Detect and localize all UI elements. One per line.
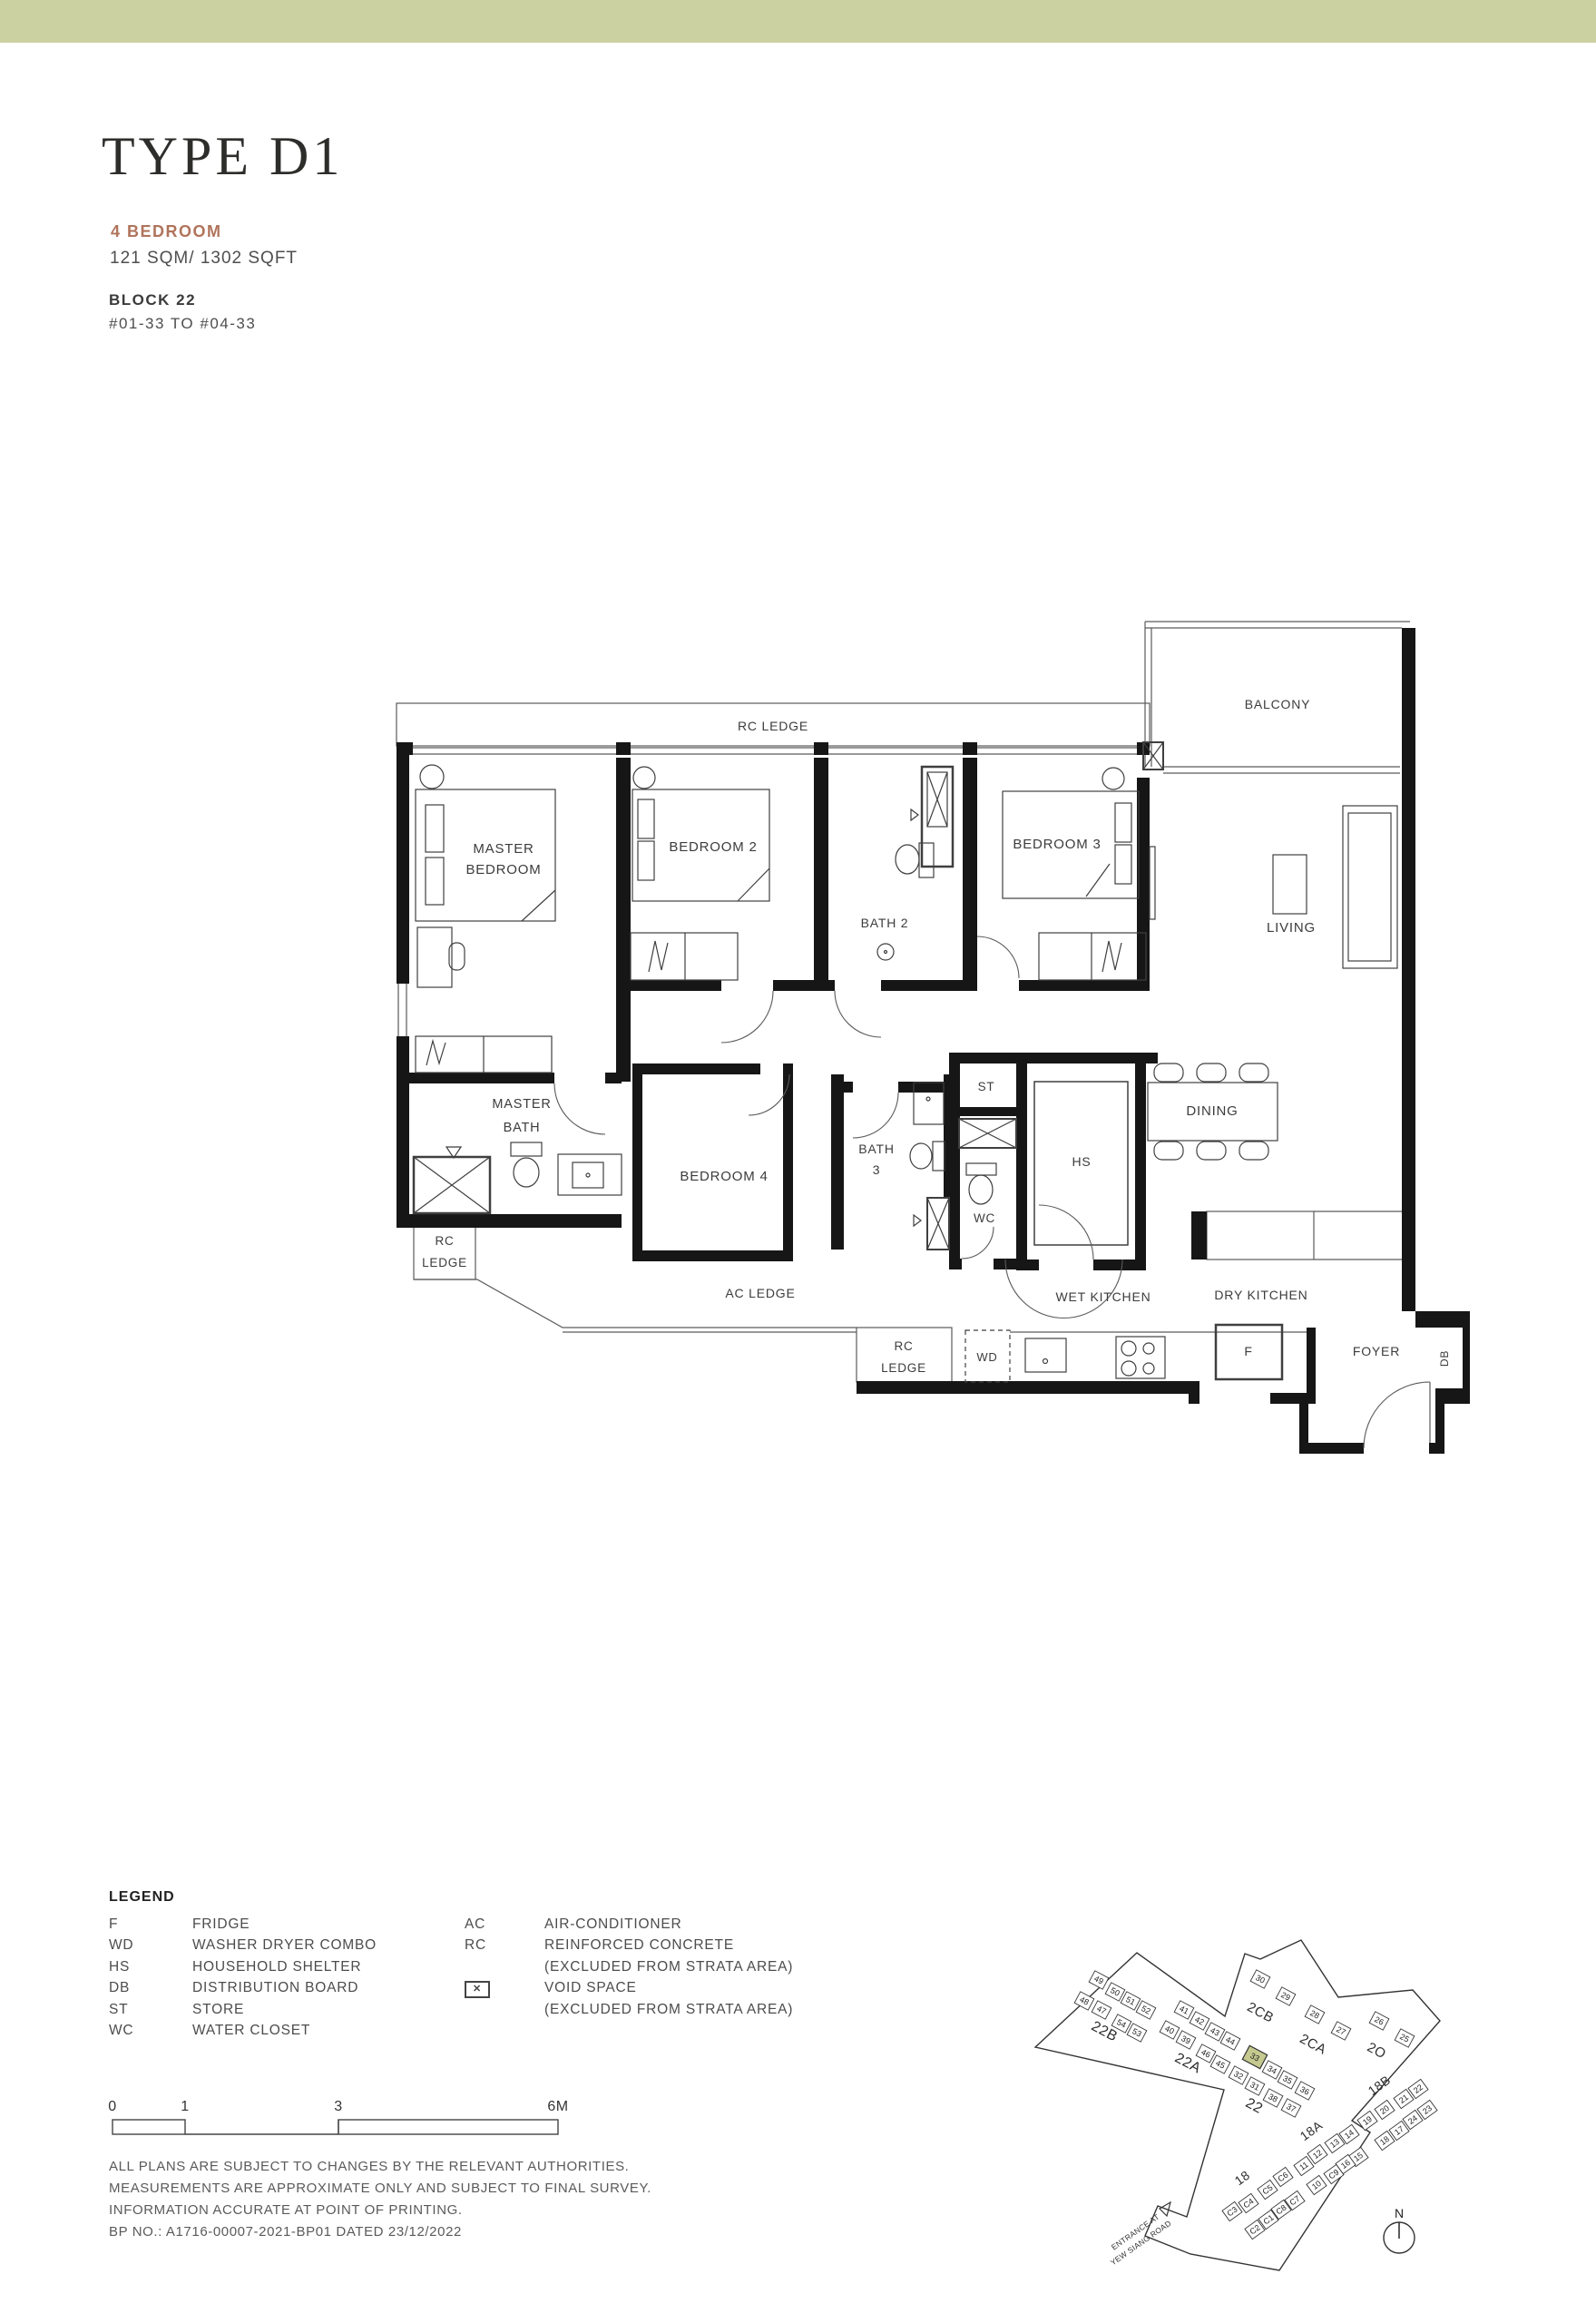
walls bbox=[397, 628, 1470, 1454]
north-label: N bbox=[1395, 2206, 1404, 2220]
site-boundary bbox=[1035, 1940, 1440, 2270]
legend-key: DB bbox=[109, 1977, 192, 1998]
desk bbox=[417, 927, 452, 987]
north-compass-icon: N bbox=[1384, 2206, 1415, 2253]
site-unit: 43 bbox=[1205, 2023, 1225, 2041]
legend-desc: AIR-CONDITIONER bbox=[544, 1914, 682, 1935]
site-unit: 53 bbox=[1127, 2024, 1147, 2042]
tv-console bbox=[1150, 847, 1155, 919]
scale-bar-shape bbox=[113, 2120, 558, 2134]
site-unit: 36 bbox=[1295, 2082, 1315, 2100]
site-unit: 52 bbox=[1136, 2001, 1156, 2019]
room-label-master-bath: MASTER bbox=[492, 1097, 551, 1112]
legend-desc: FRIDGE bbox=[192, 1914, 250, 1935]
site-unit: 27 bbox=[1331, 2022, 1351, 2040]
area-label: 121 SQM/ 1302 SQFT bbox=[110, 249, 298, 269]
site-unit: 19 bbox=[1357, 2111, 1377, 2130]
room-label-rc-ledge-bottom: RC bbox=[894, 1339, 913, 1353]
site-unit: 34 bbox=[1262, 2061, 1282, 2079]
scale-tick: 1 bbox=[181, 2099, 189, 2114]
site-unit: 12 bbox=[1307, 2144, 1327, 2163]
room-label-living: LIVING bbox=[1267, 920, 1316, 936]
site-unit: 38 bbox=[1263, 2089, 1283, 2107]
room-label-bath-3: BATH bbox=[858, 1142, 895, 1156]
legend-desc: REINFORCED CONCRETE (EXCLUDED FROM STRAT… bbox=[544, 1935, 793, 1977]
void-box-icon: ✕ bbox=[465, 1981, 490, 1998]
site-unit: 30 bbox=[1250, 1970, 1270, 1988]
site-unit: 25 bbox=[1395, 2029, 1415, 2047]
site-unit: 35 bbox=[1278, 2071, 1297, 2089]
legend-key: AC bbox=[465, 1914, 544, 1935]
site-unit: 47 bbox=[1092, 2001, 1111, 2019]
legend-left-column: FFRIDGEWDWASHER DRYER COMBOHSHOUSEHOLD S… bbox=[109, 1914, 465, 2041]
room-label-fridge: F bbox=[1244, 1344, 1252, 1358]
legend-row: STSTORE bbox=[109, 1999, 465, 2020]
room-label-balcony: BALCONY bbox=[1245, 697, 1311, 711]
site-unit: 10 bbox=[1307, 2175, 1327, 2194]
legend-key: F bbox=[109, 1914, 192, 1935]
legend-title: LEGEND bbox=[109, 1889, 853, 1906]
room-label-rc-ledge-left: RC bbox=[435, 1234, 454, 1248]
site-unit: 37 bbox=[1281, 2099, 1301, 2117]
site-block-label: 2CB bbox=[1245, 1999, 1277, 2025]
room-label-bedroom-2: BEDROOM 2 bbox=[669, 839, 757, 855]
page-title: TYPE D1 bbox=[102, 125, 343, 188]
site-block-label: 22 bbox=[1243, 2095, 1266, 2117]
room-label-bedroom-3: BEDROOM 3 bbox=[1013, 837, 1101, 852]
room-label-foyer: FOYER bbox=[1353, 1344, 1400, 1358]
room-label-bedroom-4: BEDROOM 4 bbox=[680, 1169, 768, 1184]
entrance-label: ENTRANCE ATYEW SIANG ROAD bbox=[1109, 2212, 1173, 2268]
site-unit: 44 bbox=[1220, 2032, 1240, 2050]
furniture bbox=[414, 742, 1397, 1382]
site-unit: 28 bbox=[1305, 2005, 1325, 2024]
site-plan: 4950515248475453414243444039464533343536… bbox=[989, 1860, 1596, 2323]
legend-desc: STORE bbox=[192, 1999, 244, 2020]
legend-desc: WASHER DRYER COMBO bbox=[192, 1935, 377, 1955]
site-unit: C6 bbox=[1273, 2167, 1293, 2186]
legend-desc: WATER CLOSET bbox=[192, 2020, 310, 2041]
site-unit: 32 bbox=[1229, 2066, 1248, 2084]
room-label-master-bedroom: MASTER bbox=[473, 841, 534, 857]
room-label-hs: HS bbox=[1072, 1154, 1091, 1169]
room-label-master-bedroom: BEDROOM bbox=[465, 862, 541, 877]
site-block-label: 2CA bbox=[1297, 2031, 1329, 2057]
unit-range-label: #01-33 TO #04-33 bbox=[109, 315, 256, 333]
scale-tick: 0 bbox=[108, 2099, 116, 2114]
legend: LEGEND FFRIDGEWDWASHER DRYER COMBOHSHOUS… bbox=[109, 1889, 853, 2041]
site-unit: 49 bbox=[1089, 1971, 1109, 1989]
legend-row: ACAIR-CONDITIONER bbox=[465, 1914, 793, 1935]
room-label-dining: DINING bbox=[1186, 1103, 1238, 1119]
site-unit: 26 bbox=[1369, 2012, 1389, 2030]
legend-desc: HOUSEHOLD SHELTER bbox=[192, 1956, 361, 1977]
legend-row: HSHOUSEHOLD SHELTER bbox=[109, 1956, 465, 1977]
site-unit: 29 bbox=[1276, 1987, 1296, 2005]
site-unit: 42 bbox=[1190, 2012, 1209, 2030]
site-block-label: 18B bbox=[1366, 2073, 1394, 2098]
scale-tick: 3 bbox=[334, 2099, 342, 2114]
wardrobe-2 bbox=[631, 933, 738, 980]
site-unit: C3 bbox=[1222, 2201, 1242, 2220]
legend-row: ✕VOID SPACE (EXCLUDED FROM STRATA AREA) bbox=[465, 1977, 793, 2020]
room-label-wc: WC bbox=[974, 1211, 995, 1225]
legend-row: RCREINFORCED CONCRETE (EXCLUDED FROM STR… bbox=[465, 1935, 793, 1977]
room-label-master-bath: BATH bbox=[504, 1121, 541, 1135]
floor-plan: RC LEDGEBALCONYMASTERBEDROOMBEDROOM 2BAT… bbox=[377, 594, 1493, 1475]
site-unit: 41 bbox=[1174, 2001, 1194, 2019]
legend-key: RC bbox=[465, 1935, 544, 1977]
legend-row: DBDISTRIBUTION BOARD bbox=[109, 1977, 465, 1998]
site-unit: 51 bbox=[1121, 1992, 1141, 2010]
site-block-label: 2O bbox=[1365, 2040, 1389, 2063]
site-unit: 20 bbox=[1375, 2100, 1395, 2119]
room-label-ac-ledge: AC LEDGE bbox=[725, 1286, 795, 1300]
room-label-wd: WD bbox=[976, 1350, 997, 1364]
legend-row: WCWATER CLOSET bbox=[109, 2020, 465, 2041]
site-unit-highlighted: 33 bbox=[1242, 2045, 1267, 2068]
scale-bar: 0136M bbox=[107, 2087, 579, 2148]
wardrobe-3 bbox=[1039, 933, 1146, 980]
bedroom-count-label: 4 BEDROOM bbox=[111, 222, 222, 241]
site-plan-drawing: 4950515248475453414243444039464533343536… bbox=[989, 1860, 1596, 2323]
room-label-rc-ledge-top: RC LEDGE bbox=[738, 719, 808, 733]
legend-key: ST bbox=[109, 1999, 192, 2020]
scale-tick-labels: 0136M bbox=[108, 2099, 568, 2114]
room-label-rc-ledge-left: LEDGE bbox=[422, 1256, 467, 1269]
void-box-icon: ✕ bbox=[465, 1977, 544, 2020]
site-unit: C5 bbox=[1258, 2180, 1278, 2199]
site-unit: 31 bbox=[1245, 2077, 1265, 2095]
legend-desc: DISTRIBUTION BOARD bbox=[192, 1977, 358, 1998]
sofa bbox=[1343, 806, 1397, 968]
legend-key: HS bbox=[109, 1956, 192, 1977]
legend-row: FFRIDGE bbox=[109, 1914, 465, 1935]
site-unit: 11 bbox=[1294, 2156, 1314, 2175]
legend-key: WD bbox=[109, 1935, 192, 1955]
legend-row: WDWASHER DRYER COMBO bbox=[109, 1935, 465, 1955]
thin-lines bbox=[397, 622, 1430, 1446]
room-label-db: DB bbox=[1438, 1350, 1451, 1367]
site-unit: 39 bbox=[1176, 2031, 1196, 2049]
floor-plan-drawing: RC LEDGEBALCONYMASTERBEDROOMBEDROOM 2BAT… bbox=[377, 594, 1493, 1475]
brochure-page: TYPE D1 4 BEDROOM 121 SQM/ 1302 SQFT BLO… bbox=[0, 0, 1596, 2323]
room-label-st: ST bbox=[978, 1080, 995, 1093]
void-duct-bath2 bbox=[922, 767, 953, 867]
site-unit: 40 bbox=[1160, 2021, 1180, 2039]
block-label: BLOCK 22 bbox=[109, 291, 196, 309]
site-unit: 50 bbox=[1105, 1983, 1125, 2001]
site-unit: C4 bbox=[1239, 2193, 1258, 2212]
site-block-label: 18A bbox=[1297, 2118, 1326, 2144]
room-label-dry-kitchen: DRY KITCHEN bbox=[1214, 1288, 1307, 1302]
header-color-band bbox=[0, 0, 1596, 43]
site-block-label: 18 bbox=[1232, 2168, 1253, 2189]
scale-tick: 6M bbox=[547, 2099, 568, 2114]
room-label-bath-2: BATH 2 bbox=[861, 916, 909, 930]
room-label-wet-kitchen: WET KITCHEN bbox=[1056, 1289, 1151, 1304]
site-unit: 45 bbox=[1210, 2055, 1230, 2073]
kitchen-sink bbox=[1025, 1338, 1066, 1372]
legend-key: WC bbox=[109, 2020, 192, 2041]
legend-right-column: ACAIR-CONDITIONERRCREINFORCED CONCRETE (… bbox=[465, 1914, 793, 2041]
room-label-bath-3: 3 bbox=[873, 1162, 881, 1177]
legend-desc: VOID SPACE (EXCLUDED FROM STRATA AREA) bbox=[544, 1977, 793, 2020]
coffee-table bbox=[1273, 855, 1307, 914]
room-label-rc-ledge-bottom: LEDGE bbox=[881, 1361, 926, 1375]
disclaimer-text: ALL PLANS ARE SUBJECT TO CHANGES BY THE … bbox=[109, 2156, 651, 2243]
